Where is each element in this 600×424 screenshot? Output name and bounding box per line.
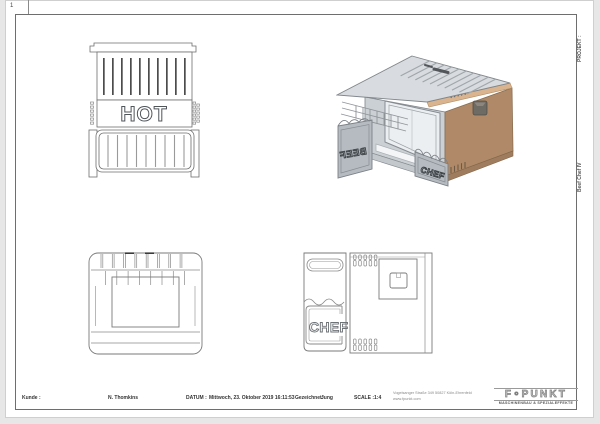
drawn-by-value: Jung [321, 395, 333, 401]
chef-side-label: CHEF [309, 319, 348, 335]
date-value: Mittwoch, 23. Oktober 2019 16:11:53 [209, 395, 295, 401]
company-address: Vogelsanger Straße 349 50827 Köln-Ehrenf… [393, 391, 472, 396]
date-label: DATUM : [186, 395, 207, 401]
zone-number: 1 [10, 3, 13, 9]
company-logo: F∘PUNKT MASCHINENBAU & SPEZIALEFFEKTE [494, 388, 578, 406]
front-view-drawing: HOT [86, 40, 202, 180]
side-view-drawing: CHEF [296, 248, 438, 358]
hot-label: HOT [120, 103, 167, 126]
zone-tick-mark [28, 0, 29, 14]
company-logo-wordmark: F∘PUNKT [494, 388, 578, 401]
isometric-view-drawing: BEEF CHEF [336, 55, 514, 196]
company-logo-subtitle: MASCHINENBAU & SPEZIALEFFEKTE [494, 401, 578, 406]
company-website: www.fpunkt.com [393, 397, 421, 402]
project-value-vertical: Beef Chef IV [577, 163, 583, 192]
customer-name: N. Thomkins [108, 395, 138, 401]
customer-label: Kunde : [22, 395, 41, 401]
iso-lid [337, 56, 510, 102]
chef-flap-side: CHEF [304, 253, 348, 351]
iso-beef-flap: BEEF [338, 119, 372, 178]
scale-label: SCALE : [354, 395, 374, 401]
cad-drawing-sheet: 1 PROJEKT : Beef Chef IV [0, 0, 600, 424]
drawn-by-label: Gezeichnet: [295, 395, 323, 401]
scale-value: 1:4 [374, 395, 381, 401]
iso-knob [473, 101, 487, 115]
project-label-vertical: PROJEKT : [577, 35, 583, 62]
rear-view-drawing [86, 248, 204, 358]
